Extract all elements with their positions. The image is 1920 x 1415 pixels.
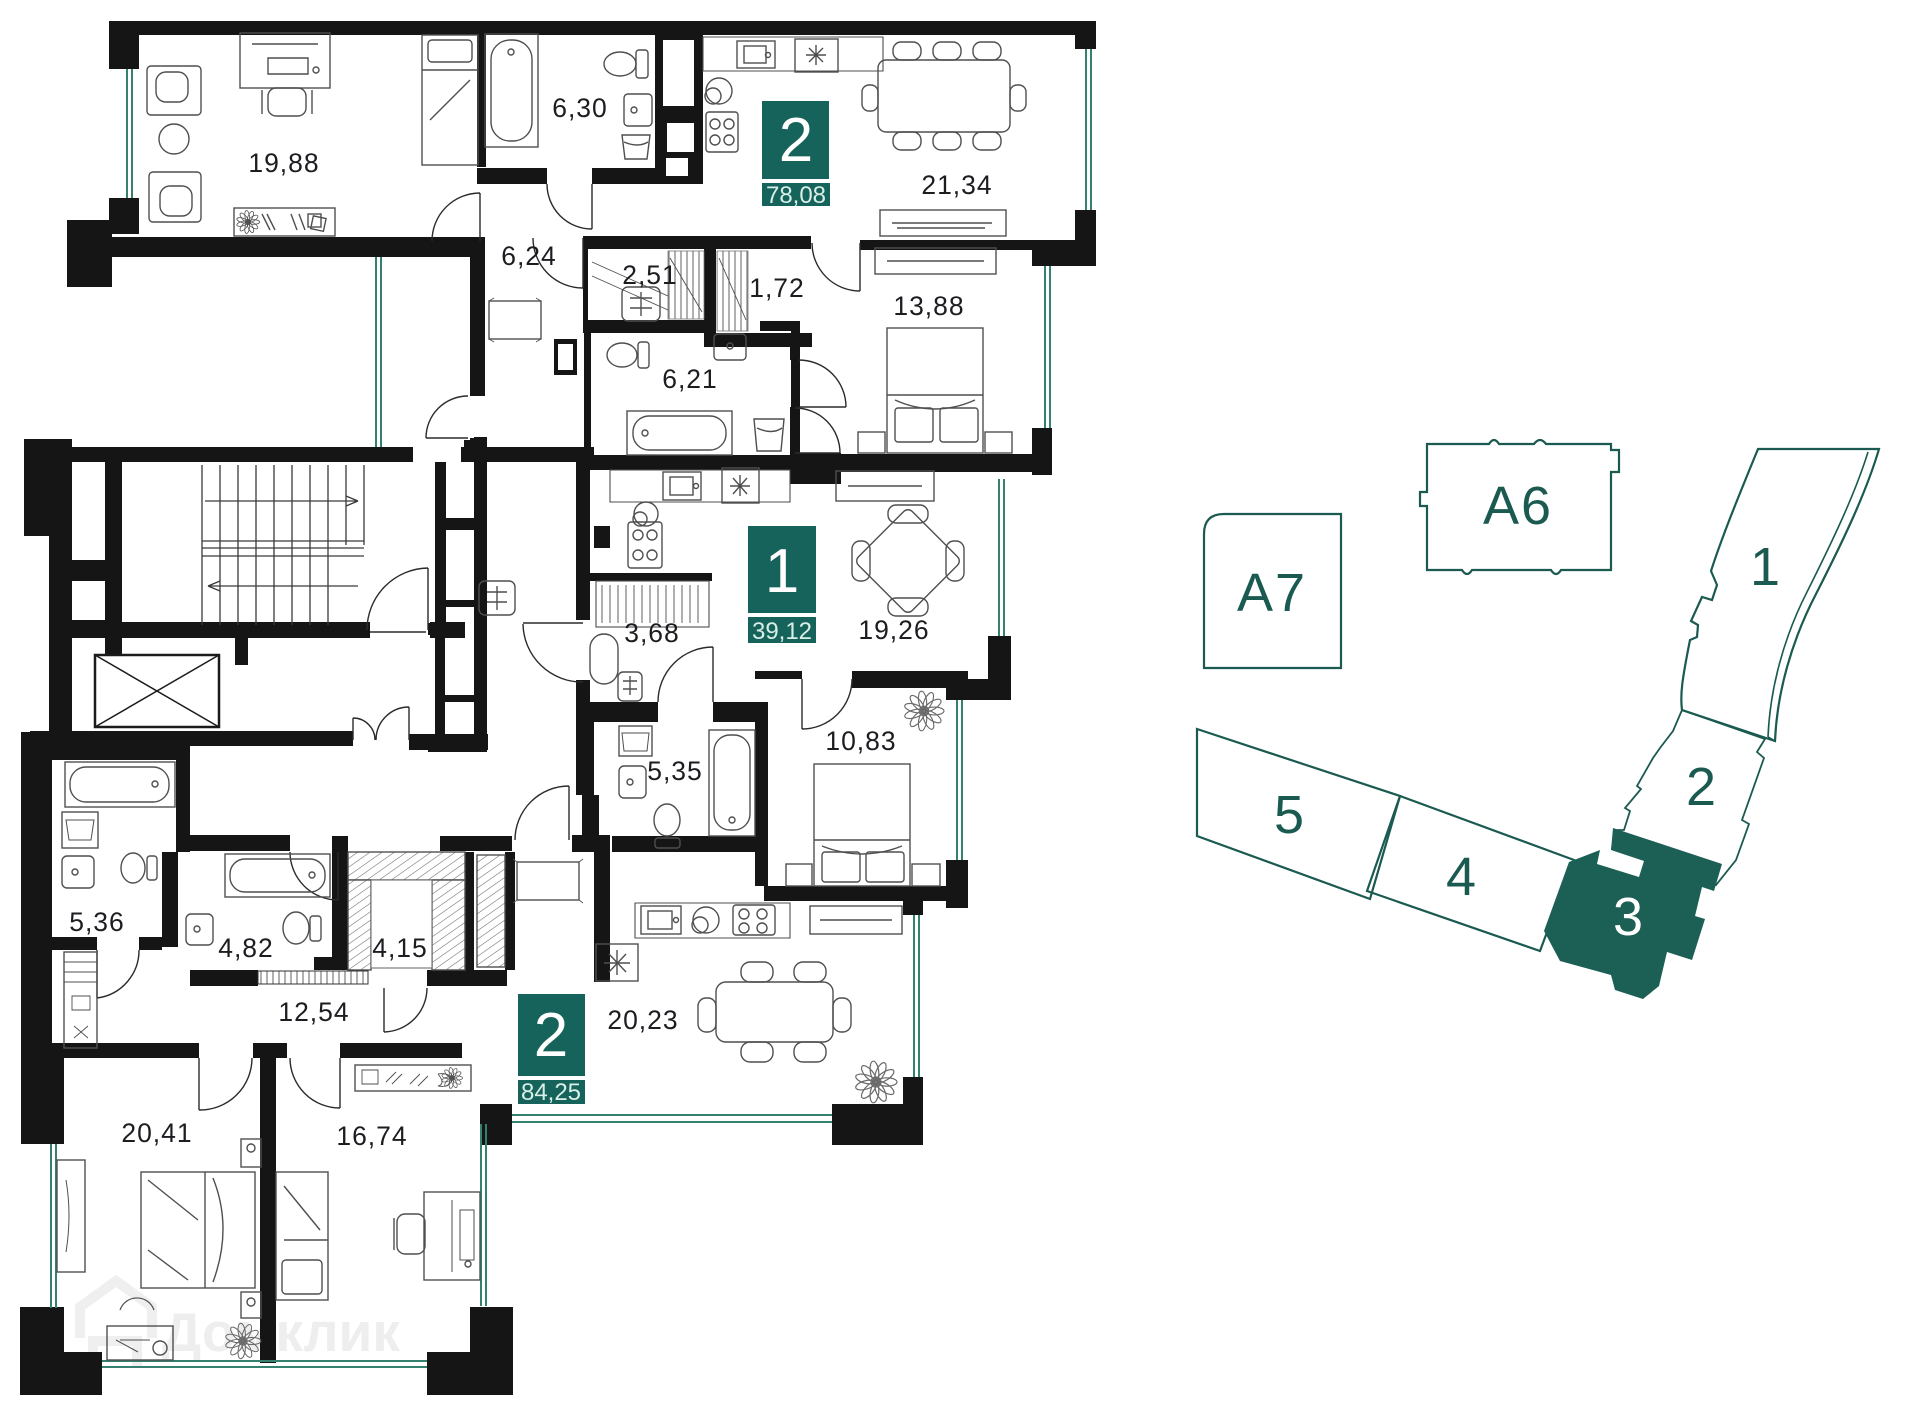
svg-text:19,26: 19,26 (858, 615, 929, 645)
svg-text:3: 3 (1613, 887, 1643, 947)
svg-text:2: 2 (1686, 757, 1718, 817)
svg-text:3,68: 3,68 (624, 618, 680, 648)
svg-text:4,15: 4,15 (372, 933, 428, 963)
svg-text:84,25: 84,25 (521, 1079, 581, 1106)
svg-text:1: 1 (1750, 537, 1782, 597)
svg-text:6,30: 6,30 (552, 93, 608, 123)
svg-text:1: 1 (765, 537, 799, 606)
svg-text:Домклик: Домклик (162, 1301, 400, 1363)
svg-text:20,23: 20,23 (607, 1005, 678, 1035)
svg-text:12,54: 12,54 (278, 997, 349, 1027)
svg-text:2: 2 (779, 106, 813, 175)
svg-text:A7: A7 (1237, 563, 1307, 623)
svg-text:39,12: 39,12 (752, 618, 812, 645)
svg-text:2,51: 2,51 (622, 260, 678, 290)
svg-text:13,88: 13,88 (893, 291, 964, 321)
svg-text:19,88: 19,88 (248, 148, 319, 178)
svg-text:5,36: 5,36 (69, 907, 125, 937)
svg-text:21,34: 21,34 (921, 170, 992, 200)
svg-text:20,41: 20,41 (121, 1118, 192, 1148)
svg-text:6,24: 6,24 (501, 241, 557, 271)
svg-text:4,82: 4,82 (218, 933, 274, 963)
svg-text:16,74: 16,74 (336, 1121, 407, 1151)
svg-text:4: 4 (1446, 847, 1478, 907)
svg-text:78,08: 78,08 (766, 182, 826, 209)
svg-text:6,21: 6,21 (662, 364, 718, 394)
svg-text:5,35: 5,35 (647, 756, 703, 786)
svg-text:2: 2 (534, 1001, 568, 1070)
svg-text:10,83: 10,83 (825, 726, 896, 756)
svg-text:1,72: 1,72 (749, 273, 805, 303)
svg-text:5: 5 (1274, 785, 1306, 845)
svg-text:A6: A6 (1483, 476, 1553, 536)
